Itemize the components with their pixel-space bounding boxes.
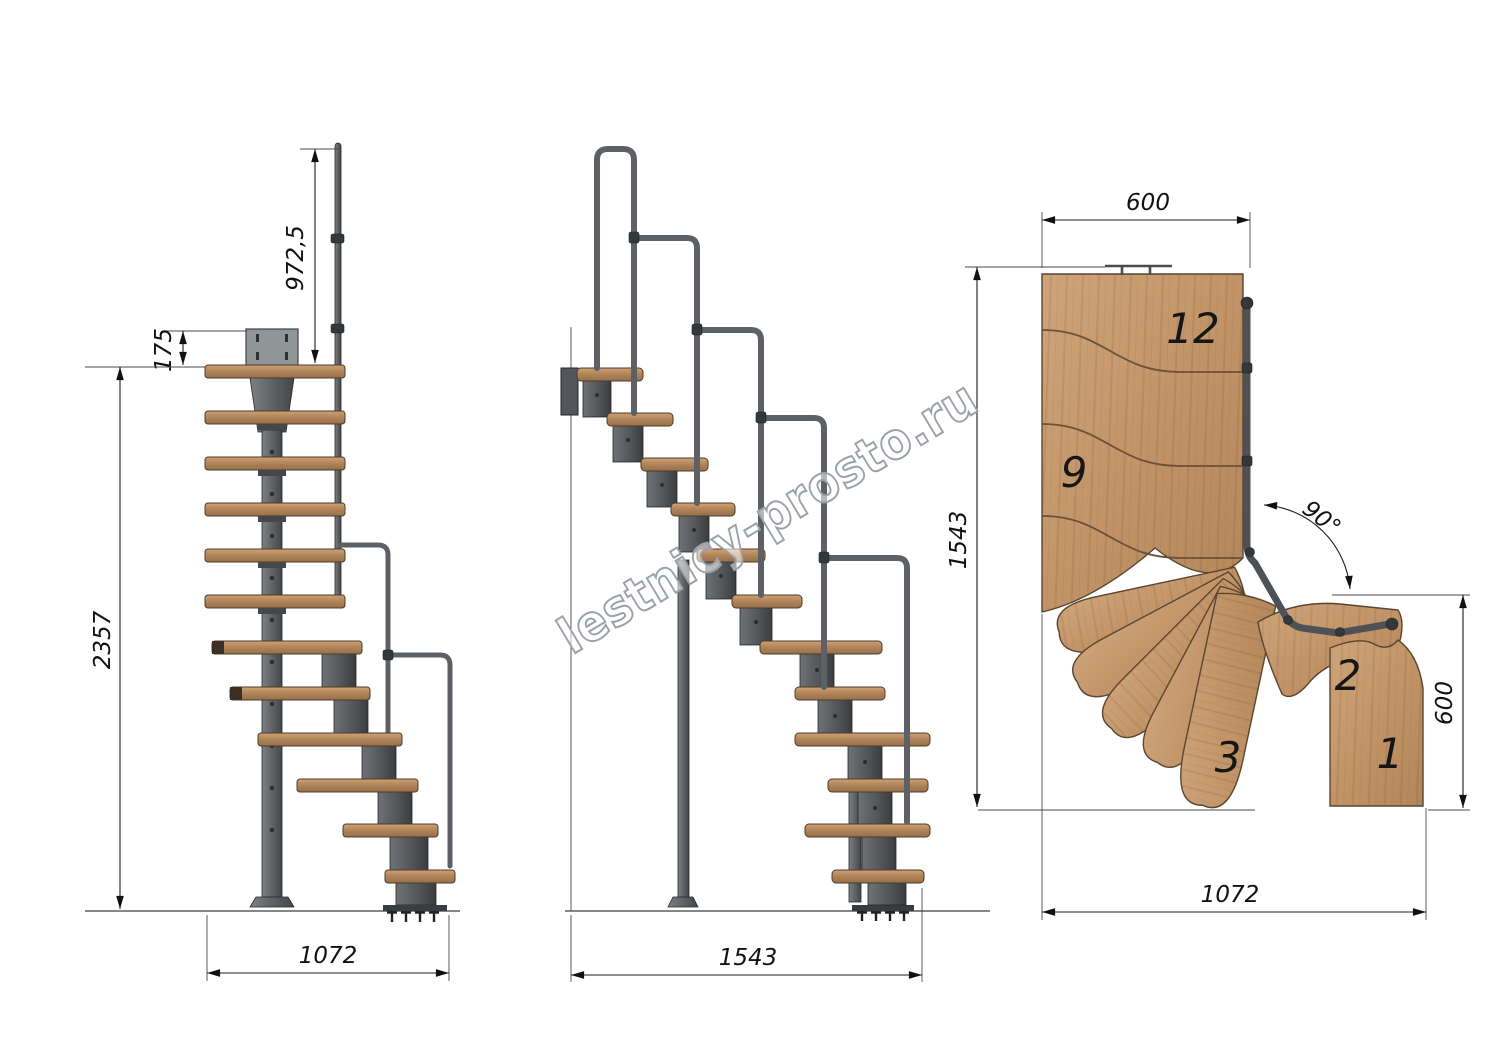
staircase-drawing: 972,5 175 2357 1072 (0, 0, 1500, 1061)
step-number-9: 9 (1061, 448, 1088, 497)
dim-label-600-right: 600 (1432, 681, 1458, 725)
dim-label-972-5: 972,5 (283, 225, 309, 291)
step-number-3: 3 (1215, 733, 1242, 782)
dimension-total-height: 2357 (85, 367, 205, 909)
dimension-plan-top-width: 600 (1042, 190, 1250, 268)
step-number-1: 1 (1377, 729, 1404, 778)
dim-label-90deg: 90° (1297, 496, 1345, 542)
plan-view: 12 9 3 2 1 600 1543 90° 600 (946, 190, 1470, 920)
plan-turn-treads (1053, 566, 1276, 812)
dim-label-1072-plan: 1072 (1201, 882, 1260, 908)
dim-label-1543-plan: 1543 (946, 511, 972, 570)
mounting-plate (246, 329, 298, 367)
dim-label-600-top: 600 (1126, 190, 1170, 216)
step-number-12: 12 (1166, 304, 1219, 353)
dim-label-175: 175 (151, 328, 177, 372)
dim-label-1543-front: 1543 (719, 945, 778, 971)
plan-handrail (1241, 297, 1398, 637)
front-elevation-view: 1543 (561, 149, 990, 982)
dim-label-2357: 2357 (90, 610, 116, 669)
side-treads-lower (212, 641, 455, 922)
dimension-side-run: 1072 (207, 915, 449, 981)
side-elevation-view: 972,5 175 2357 1072 (85, 143, 460, 981)
anchor-bolts (387, 911, 439, 922)
dimension-turn-angle: 90° (1264, 496, 1350, 589)
dim-label-1072-side: 1072 (299, 943, 358, 969)
step-number-2: 2 (1335, 651, 1362, 700)
technical-drawing-canvas: 972,5 175 2357 1072 (0, 0, 1500, 1061)
